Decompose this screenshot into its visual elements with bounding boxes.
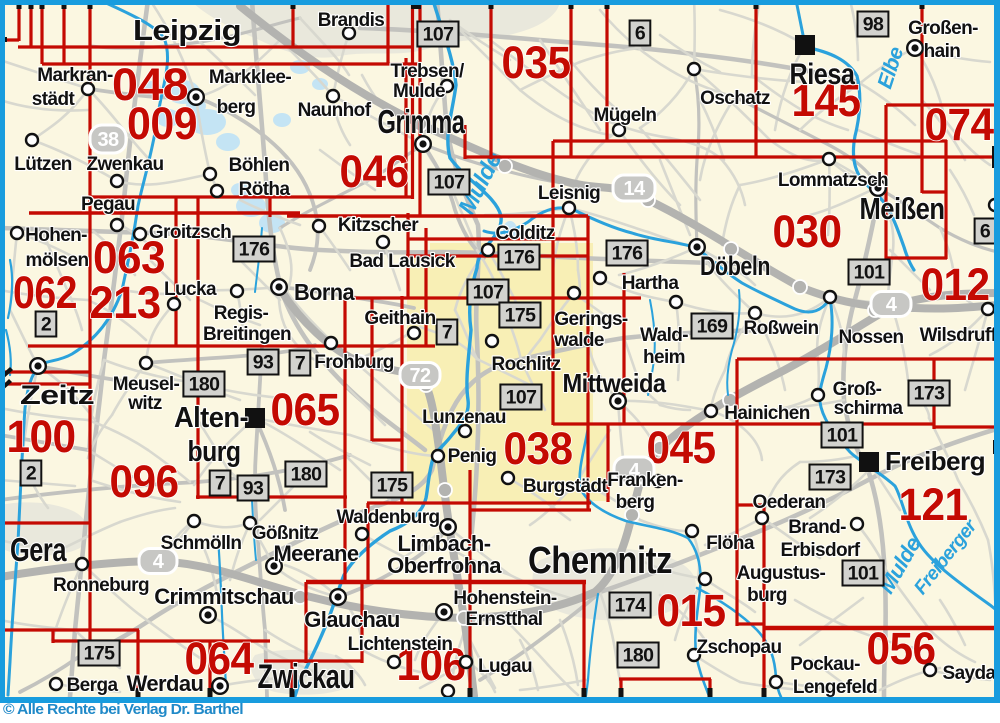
svg-text:93: 93: [253, 352, 274, 374]
svg-text:Schmölln: Schmölln: [161, 533, 242, 554]
svg-text:100: 100: [7, 411, 76, 462]
svg-text:009: 009: [127, 98, 197, 149]
svg-text:2: 2: [26, 463, 37, 485]
svg-text:Borna: Borna: [294, 279, 355, 305]
svg-text:Rötha: Rötha: [239, 179, 291, 200]
svg-text:4: 4: [886, 294, 898, 316]
svg-text:Franken-: Franken-: [607, 470, 683, 491]
svg-text:074: 074: [925, 99, 995, 150]
svg-text:14: 14: [623, 178, 646, 200]
svg-text:175: 175: [377, 475, 408, 497]
svg-text:7: 7: [442, 322, 452, 344]
svg-text:Groß-: Groß-: [833, 379, 882, 400]
svg-text:Glauchau: Glauchau: [304, 607, 399, 632]
svg-text:6: 6: [980, 221, 991, 243]
svg-text:Lengefeld: Lengefeld: [793, 677, 877, 698]
svg-text:Geithain: Geithain: [364, 308, 435, 329]
svg-text:Lützen: Lützen: [14, 154, 72, 175]
svg-text:176: 176: [612, 243, 643, 265]
svg-text:035: 035: [502, 37, 571, 88]
svg-text:Lichtenstein: Lichtenstein: [348, 634, 453, 655]
svg-text:121: 121: [899, 479, 968, 530]
svg-text:015: 015: [657, 585, 726, 636]
svg-text:107: 107: [434, 172, 465, 194]
svg-text:169: 169: [697, 316, 728, 338]
svg-text:176: 176: [504, 247, 535, 269]
svg-text:175: 175: [84, 643, 115, 665]
svg-text:4: 4: [153, 551, 165, 573]
svg-text:Gerings-: Gerings-: [554, 309, 628, 330]
svg-text:Breitingen: Breitingen: [203, 324, 291, 345]
svg-text:Zwenkau: Zwenkau: [86, 154, 163, 175]
svg-text:Lommatzsch: Lommatzsch: [778, 170, 888, 191]
svg-text:Riesa: Riesa: [790, 58, 856, 91]
svg-text:180: 180: [189, 374, 220, 396]
svg-text:Alten-: Alten-: [174, 402, 248, 434]
svg-text:Döbeln: Döbeln: [700, 251, 770, 281]
svg-text:038: 038: [504, 423, 573, 474]
svg-text:Brandis: Brandis: [318, 10, 385, 31]
svg-text:6: 6: [635, 23, 646, 45]
svg-text:096: 096: [110, 456, 179, 507]
svg-text:98: 98: [863, 14, 884, 36]
svg-text:Bad Lausick: Bad Lausick: [349, 251, 455, 272]
svg-text:Roßwein: Roßwein: [744, 318, 819, 339]
svg-text:Crimmitschau: Crimmitschau: [154, 584, 294, 609]
svg-text:Mügeln: Mügeln: [594, 105, 657, 126]
svg-text:Nossen: Nossen: [838, 327, 903, 348]
svg-text:Hainichen: Hainichen: [724, 403, 809, 424]
svg-text:7: 7: [295, 353, 305, 375]
svg-text:107: 107: [473, 282, 504, 304]
svg-text:174: 174: [615, 595, 646, 617]
svg-text:101: 101: [848, 563, 879, 585]
svg-text:Oberfrohna: Oberfrohna: [387, 553, 502, 578]
svg-text:berg: berg: [616, 492, 655, 513]
svg-text:Flöha: Flöha: [706, 533, 755, 554]
svg-text:2: 2: [41, 314, 52, 336]
svg-text:Großen-: Großen-: [908, 18, 978, 39]
svg-text:Trebsen/: Trebsen/: [390, 61, 465, 82]
svg-text:Erbisdorf: Erbisdorf: [780, 540, 860, 561]
svg-text:065: 065: [271, 384, 340, 435]
svg-text:Meerane: Meerane: [273, 541, 358, 566]
svg-text:Oederan: Oederan: [753, 492, 826, 513]
svg-text:Böhlen: Böhlen: [229, 155, 290, 176]
svg-text:173: 173: [815, 467, 846, 489]
svg-text:Frohburg: Frohburg: [314, 352, 394, 373]
svg-text:Leisnig: Leisnig: [538, 183, 600, 204]
svg-text:Markran-: Markran-: [37, 65, 113, 86]
svg-text:Sayda: Sayda: [943, 663, 997, 684]
svg-text:180: 180: [291, 464, 322, 486]
svg-text:Brand-: Brand-: [788, 517, 846, 538]
svg-text:Meißen: Meißen: [860, 191, 945, 226]
svg-text:045: 045: [647, 422, 716, 473]
svg-text:Oschatz: Oschatz: [700, 88, 770, 109]
svg-text:176: 176: [239, 239, 270, 261]
svg-text:213: 213: [90, 277, 161, 328]
svg-text:städt: städt: [32, 89, 76, 110]
svg-text:Pockau-: Pockau-: [790, 654, 860, 675]
svg-text:107: 107: [423, 24, 454, 46]
svg-text:Pegau: Pegau: [81, 194, 135, 215]
svg-text:Freiberg: Freiberg: [885, 446, 985, 476]
svg-text:Naunhof: Naunhof: [298, 100, 372, 121]
svg-text:Mulde: Mulde: [393, 81, 445, 102]
svg-text:173: 173: [914, 383, 945, 405]
svg-text:101: 101: [827, 425, 858, 447]
svg-text:Hartha: Hartha: [622, 273, 680, 294]
svg-text:heim: heim: [643, 347, 685, 368]
svg-text:Berga: Berga: [67, 675, 119, 696]
svg-text:72: 72: [409, 365, 431, 387]
svg-text:Burgstädt: Burgstädt: [523, 476, 609, 497]
svg-text:Penig: Penig: [448, 446, 497, 467]
svg-text:walde: walde: [553, 330, 604, 351]
svg-text:© Alle Rechte bei Verlag Dr. B: © Alle Rechte bei Verlag Dr. Barthel: [3, 701, 243, 718]
svg-text:Groitzsch: Groitzsch: [149, 222, 231, 243]
svg-text:93: 93: [243, 478, 264, 500]
svg-text:Ernstthal: Ernstthal: [466, 609, 543, 630]
svg-text:175: 175: [505, 305, 536, 327]
svg-text:38: 38: [97, 129, 119, 151]
svg-text:Colditz: Colditz: [495, 223, 554, 244]
svg-text:Ronneburg: Ronneburg: [53, 575, 149, 596]
svg-text:Hohenstein-: Hohenstein-: [453, 588, 556, 609]
svg-text:Meusel-: Meusel-: [113, 374, 180, 395]
svg-text:Werdau: Werdau: [127, 671, 204, 696]
svg-text:Markklee-: Markklee-: [209, 67, 292, 88]
svg-text:Kitzscher: Kitzscher: [338, 215, 419, 236]
svg-text:Waldenburg: Waldenburg: [336, 507, 439, 528]
svg-text:Wald-: Wald-: [640, 325, 688, 346]
svg-text:Leipzig: Leipzig: [133, 15, 241, 47]
svg-text:mölsen: mölsen: [26, 250, 89, 271]
svg-text:Zschopau: Zschopau: [697, 637, 782, 658]
svg-text:Grimma: Grimma: [378, 103, 466, 140]
svg-text:012: 012: [921, 259, 990, 310]
svg-text:hain: hain: [924, 41, 961, 62]
svg-text:Lunzenau: Lunzenau: [422, 407, 506, 428]
svg-text:Lugau: Lugau: [478, 656, 532, 677]
svg-text:berg: berg: [217, 97, 256, 118]
svg-text:Mittweida: Mittweida: [563, 368, 667, 398]
svg-text:180: 180: [623, 645, 654, 667]
svg-text:Rochlitz: Rochlitz: [491, 354, 560, 375]
svg-text:107: 107: [506, 387, 537, 409]
svg-text:062: 062: [13, 267, 77, 318]
svg-text:Regis-: Regis-: [214, 303, 269, 324]
svg-text:Lucka: Lucka: [164, 279, 217, 300]
svg-text:burg: burg: [747, 585, 787, 606]
svg-text:Zeitz: Zeitz: [20, 380, 94, 410]
svg-text:schirma: schirma: [834, 398, 904, 419]
svg-text:Gera: Gera: [10, 531, 67, 568]
svg-text:Zwickau: Zwickau: [258, 658, 355, 696]
svg-text:Wilsdruff: Wilsdruff: [920, 325, 998, 346]
svg-text:Chemnitz: Chemnitz: [528, 540, 672, 582]
svg-text:Augustus-: Augustus-: [737, 563, 826, 584]
svg-text:Hohen-: Hohen-: [25, 225, 87, 246]
svg-text:7: 7: [215, 473, 225, 495]
svg-text:witz: witz: [127, 393, 162, 414]
svg-text:030: 030: [773, 206, 842, 257]
svg-text:046: 046: [340, 146, 409, 197]
svg-text:101: 101: [854, 262, 885, 284]
svg-text:burg: burg: [188, 436, 241, 468]
